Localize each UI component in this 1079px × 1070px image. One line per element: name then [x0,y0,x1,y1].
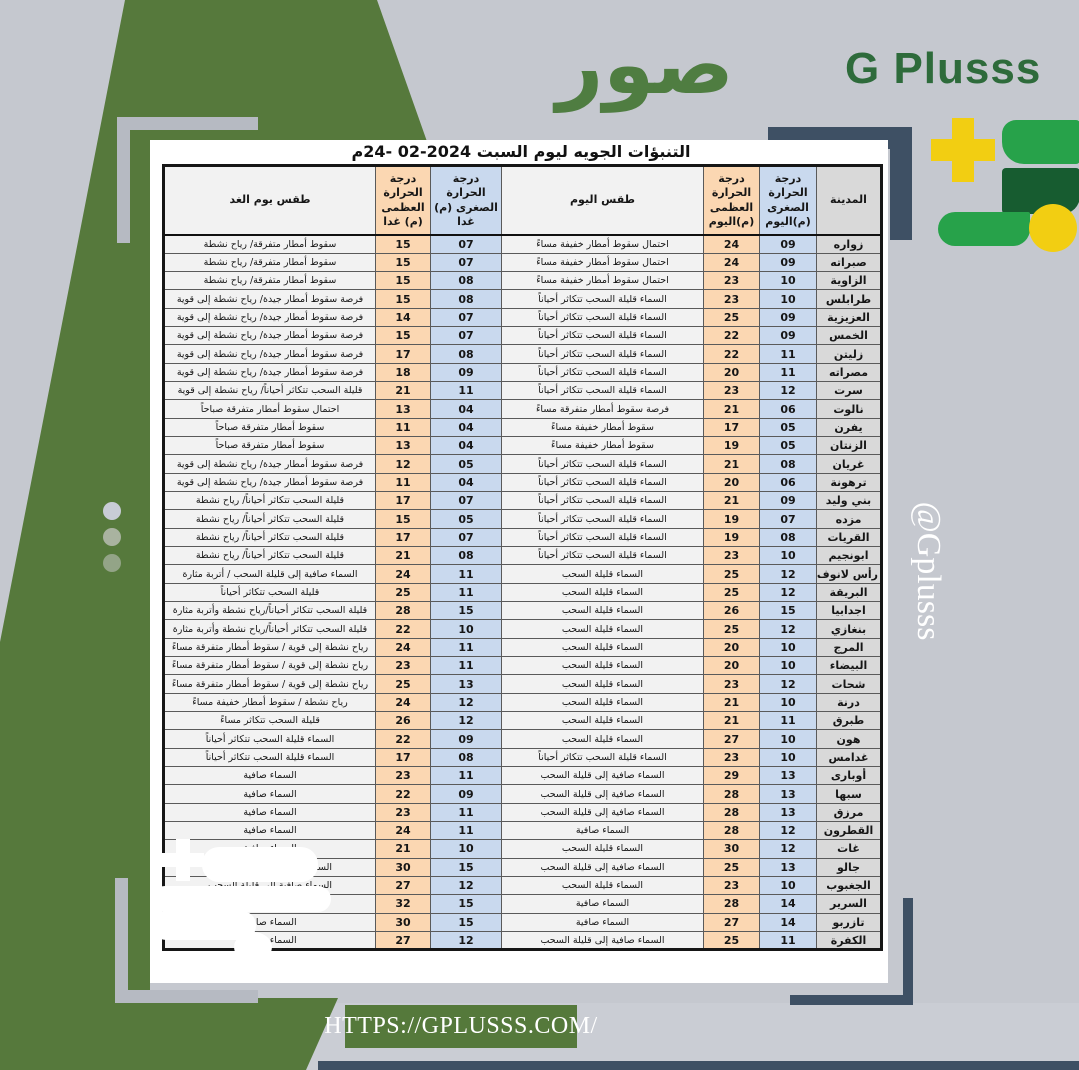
city-cell: مصراته [817,363,882,381]
bottom-left-bracket-vertical [115,878,128,1003]
city-cell: مزده [817,510,882,528]
today-max-cell: 24 [704,253,760,271]
today-min-cell: 13 [760,785,817,803]
today-max-cell: 23 [704,876,760,894]
today-max-cell: 28 [704,895,760,913]
tomorrow-max-cell: 25 [376,583,431,601]
today-weather-cell: السماء قليلة السحب تتكاثر أحياناً [502,547,704,565]
tomorrow-min-cell: 05 [431,510,502,528]
tomorrow-min-cell: 07 [431,327,502,345]
today-min-cell: 06 [760,400,817,418]
tomorrow-max-cell: 30 [376,913,431,931]
tomorrow-min-cell: 13 [431,675,502,693]
tomorrow-weather-cell: فرصة سقوط أمطار جيدة/ رياح نشطة إلى قوية [164,327,376,345]
tomorrow-min-cell: 11 [431,583,502,601]
tomorrow-weather-cell: قليلة السحب تتكاثر أحياناً/ رياح نشطة [164,492,376,510]
tomorrow-max-cell: 13 [376,437,431,455]
today-min-cell: 09 [760,308,817,326]
tomorrow-min-cell: 15 [431,602,502,620]
city-cell: القطرون [817,822,882,840]
today-weather-cell: السماء قليلة السحب [502,602,704,620]
tomorrow-max-cell: 17 [376,748,431,766]
today-min-cell: 08 [760,528,817,546]
today-max-cell: 25 [704,620,760,638]
today-weather-cell: السماء صافية إلى قليلة السحب [502,767,704,785]
tomorrow-min-cell: 05 [431,455,502,473]
today-max-cell: 20 [704,473,760,491]
tomorrow-weather-cell: فرصة سقوط أمطار جيدة/ رياح نشطة إلى قوية [164,473,376,491]
today-weather-cell: السماء صافية [502,822,704,840]
tomorrow-min-cell: 12 [431,693,502,711]
today-max-cell: 22 [704,327,760,345]
table-row: سبها1328السماء صافية إلى قليلة السحب0922… [164,785,882,803]
tomorrow-min-cell: 04 [431,418,502,436]
tomorrow-max-cell: 23 [376,803,431,821]
logo-dot [1029,204,1077,252]
tomorrow-min-cell: 10 [431,620,502,638]
today-weather-cell: احتمال سقوط أمطار خفيفة مساءً [502,272,704,290]
tomorrow-min-cell: 11 [431,565,502,583]
tomorrow-weather-cell: السماء صافية [164,767,376,785]
city-cell: البيضاء [817,657,882,675]
today-min-cell: 10 [760,876,817,894]
table-row: الزنتان0519سقوط أمطار خفيفة مساءً0413سقو… [164,437,882,455]
city-cell: مرزق [817,803,882,821]
tomorrow-max-cell: 11 [376,418,431,436]
table-row: البيضاء1020السماء قليلة السحب1123رياح نش… [164,657,882,675]
weather-forecast-table: المدينة درجة الحرارة الصغرى (م)اليوم درج… [162,164,883,951]
today-max-cell: 27 [704,913,760,931]
city-cell: جالو [817,858,882,876]
soor-logo-text: صور [555,18,735,118]
today-min-cell: 11 [760,345,817,363]
today-max-cell: 26 [704,602,760,620]
tomorrow-weather-cell: سقوط أمطار متفرقة صباحاً [164,418,376,436]
today-min-cell: 05 [760,418,817,436]
table-row: ترهونة0620السماء قليلة السحب تتكاثر أحيا… [164,473,882,491]
tomorrow-min-cell: 07 [431,528,502,546]
today-weather-cell: السماء قليلة السحب تتكاثر أحياناً [502,363,704,381]
tomorrow-max-cell: 30 [376,858,431,876]
tomorrow-max-cell: 15 [376,235,431,253]
today-max-cell: 21 [704,492,760,510]
today-min-cell: 12 [760,822,817,840]
city-cell: ترهونة [817,473,882,491]
tomorrow-max-cell: 21 [376,840,431,858]
today-max-cell: 25 [704,931,760,949]
today-weather-cell: السماء صافية إلى قليلة السحب [502,858,704,876]
city-cell: أوبارى [817,767,882,785]
table-row: هون1027السماء قليلة السحب0922السماء قليل… [164,730,882,748]
tomorrow-weather-cell: رياح نشطة إلى قوية / سقوط أمطار متفرقة م… [164,638,376,656]
today-max-cell: 25 [704,308,760,326]
website-url: HTTPS://GPLUSSS.COM/ [324,1013,597,1040]
today-weather-cell: السماء قليلة السحب [502,730,704,748]
city-cell: صبراته [817,253,882,271]
today-max-cell: 23 [704,748,760,766]
today-max-cell: 23 [704,272,760,290]
tomorrow-min-cell: 15 [431,858,502,876]
tomorrow-weather-cell: السماء قليلة السحب تتكاثر أحياناً [164,730,376,748]
today-weather-cell: السماء قليلة السحب [502,657,704,675]
tomorrow-min-cell: 08 [431,547,502,565]
today-weather-cell: السماء قليلة السحب تتكاثر أحياناً [502,308,704,326]
today-max-cell: 20 [704,638,760,656]
city-cell: الجغبوب [817,876,882,894]
tomorrow-min-cell: 08 [431,272,502,290]
today-max-cell: 29 [704,767,760,785]
tomorrow-weather-cell: السماء صافية [164,785,376,803]
city-cell: سرت [817,382,882,400]
bottom-right-bracket-horizontal [790,995,913,1005]
bottom-right-bracket-vertical [903,898,913,1005]
today-min-cell: 12 [760,583,817,601]
tomorrow-max-cell: 22 [376,785,431,803]
tomorrow-weather-cell: سقوط أمطار متفرقة صباحاً [164,437,376,455]
tomorrow-min-cell: 15 [431,913,502,931]
today-weather-cell: السماء قليلة السحب تتكاثر أحياناً [502,492,704,510]
watermark-plus-horizontal [162,853,204,867]
city-cell: زليتن [817,345,882,363]
city-cell: طرابلس [817,290,882,308]
city-cell: غدامس [817,748,882,766]
today-weather-cell: فرصة سقوط أمطار متفرقة مساءً [502,400,704,418]
header-tomorrow-max: درجة الحرارة العظمى (م) غدا [376,166,431,236]
table-row: زليتن1122السماء قليلة السحب تتكاثر أحيان… [164,345,882,363]
bottom-navy-strip [318,1061,1079,1070]
tomorrow-max-cell: 22 [376,730,431,748]
tomorrow-min-cell: 08 [431,345,502,363]
tomorrow-weather-cell: رياح نشطة إلى قوية / سقوط أمطار متفرقة م… [164,675,376,693]
city-cell: المرج [817,638,882,656]
today-min-cell: 07 [760,510,817,528]
tomorrow-min-cell: 11 [431,638,502,656]
today-max-cell: 19 [704,437,760,455]
city-cell: الزاوية [817,272,882,290]
tomorrow-min-cell: 11 [431,767,502,785]
table-row: زواره0924احتمال سقوط أمطار خفيفة مساءً07… [164,235,882,253]
city-cell: الزنتان [817,437,882,455]
table-body: زواره0924احتمال سقوط أمطار خفيفة مساءً07… [164,235,882,950]
tomorrow-weather-cell: قليلة السحب تتكاثر أحياناً/ رياح نشطة [164,547,376,565]
bottom-left-bracket-horizontal [115,990,258,1003]
tomorrow-max-cell: 15 [376,510,431,528]
tomorrow-max-cell: 28 [376,602,431,620]
today-max-cell: 27 [704,730,760,748]
today-weather-cell: السماء قليلة السحب [502,712,704,730]
today-weather-cell: السماء قليلة السحب تتكاثر أحياناً [502,290,704,308]
today-weather-cell: السماء قليلة السحب [502,693,704,711]
today-min-cell: 12 [760,382,817,400]
tomorrow-max-cell: 15 [376,290,431,308]
tomorrow-max-cell: 24 [376,693,431,711]
header-tomorrow-weather: طقس يوم الغد [164,166,376,236]
tomorrow-weather-cell: السماء صافية [164,822,376,840]
today-min-cell: 12 [760,565,817,583]
today-weather-cell: السماء قليلة السحب [502,876,704,894]
today-weather-cell: السماء صافية إلى قليلة السحب [502,785,704,803]
table-row: أوبارى1329السماء صافية إلى قليلة السحب11… [164,767,882,785]
today-weather-cell: سقوط أمطار خفيفة مساءً [502,418,704,436]
today-weather-cell: السماء صافية إلى قليلة السحب [502,803,704,821]
city-cell: البريقة [817,583,882,601]
today-max-cell: 19 [704,510,760,528]
tomorrow-max-cell: 14 [376,308,431,326]
city-cell: غات [817,840,882,858]
today-weather-cell: السماء قليلة السحب [502,675,704,693]
tomorrow-max-cell: 26 [376,712,431,730]
today-weather-cell: السماء قليلة السحب [502,840,704,858]
tomorrow-max-cell: 17 [376,345,431,363]
tomorrow-max-cell: 12 [376,455,431,473]
today-max-cell: 17 [704,418,760,436]
today-min-cell: 09 [760,327,817,345]
tomorrow-weather-cell: رياح نشطة / سقوط أمطار خفيفة مساءً [164,693,376,711]
today-weather-cell: السماء صافية [502,895,704,913]
top-left-bracket-horizontal [117,117,258,130]
table-row: غدامس1023السماء قليلة السحب تتكاثر أحيان… [164,748,882,766]
tomorrow-weather-cell: سقوط أمطار متفرقة/ رياح نشطة [164,235,376,253]
tomorrow-min-cell: 11 [431,657,502,675]
city-cell: الخمس [817,327,882,345]
city-cell: زواره [817,235,882,253]
today-max-cell: 28 [704,822,760,840]
today-min-cell: 12 [760,675,817,693]
tomorrow-max-cell: 13 [376,400,431,418]
header-today-weather: طقس اليوم [502,166,704,236]
city-cell: بني وليد [817,492,882,510]
tomorrow-min-cell: 11 [431,382,502,400]
title-text: التنبؤات الجويه ليوم السبت [477,142,691,161]
city-cell: العزيزية [817,308,882,326]
today-max-cell: 25 [704,858,760,876]
today-max-cell: 24 [704,235,760,253]
tomorrow-weather-cell: فرصة سقوط أمطار جيدة/ رياح نشطة إلى قوية [164,345,376,363]
table-row: شحات1223السماء قليلة السحب1325رياح نشطة … [164,675,882,693]
today-max-cell: 23 [704,547,760,565]
tomorrow-weather-cell: فرصة سقوط أمطار جيدة/ رياح نشطة إلى قوية [164,290,376,308]
table-row: بني وليد0921السماء قليلة السحب تتكاثر أح… [164,492,882,510]
today-min-cell: 10 [760,657,817,675]
today-max-cell: 21 [704,400,760,418]
table-row: سرت1223السماء قليلة السحب تتكاثر أحياناً… [164,382,882,400]
today-weather-cell: سقوط أمطار خفيفة مساءً [502,437,704,455]
tomorrow-weather-cell: قليلة السحب تتكاثر أحياناً/رياح نشطة وأت… [164,620,376,638]
tomorrow-min-cell: 12 [431,931,502,949]
today-weather-cell: السماء قليلة السحب تتكاثر أحياناً [502,327,704,345]
tomorrow-max-cell: 21 [376,382,431,400]
today-min-cell: 14 [760,913,817,931]
header-row: المدينة درجة الحرارة الصغرى (م)اليوم درج… [164,166,882,236]
city-cell: طبرق [817,712,882,730]
table-row: بنغازي1225السماء قليلة السحب1022قليلة ال… [164,620,882,638]
table-row: مرزق1328السماء صافية إلى قليلة السحب1123… [164,803,882,821]
website-url-bar[interactable]: HTTPS://GPLUSSS.COM/ [345,1005,577,1048]
table-row: طرابلس1023السماء قليلة السحب تتكاثر أحيا… [164,290,882,308]
tomorrow-max-cell: 27 [376,876,431,894]
table-row: العزيزية0925السماء قليلة السحب تتكاثر أح… [164,308,882,326]
tomorrow-weather-cell: السماء صافية [164,803,376,821]
city-cell: غريان [817,455,882,473]
today-weather-cell: السماء قليلة السحب تتكاثر أحياناً [502,473,704,491]
table-row: طبرق1121السماء قليلة السحب1226قليلة السح… [164,712,882,730]
tomorrow-max-cell: 15 [376,253,431,271]
today-min-cell: 11 [760,931,817,949]
city-cell: درنة [817,693,882,711]
tomorrow-weather-cell: قليلة السحب تتكاثر أحياناً/رياح نشطة وأت… [164,602,376,620]
tomorrow-max-cell: 17 [376,492,431,510]
tomorrow-min-cell: 15 [431,895,502,913]
today-max-cell: 20 [704,657,760,675]
table-row: غريان0821السماء قليلة السحب تتكاثر أحيان… [164,455,882,473]
watermark-blob-1 [202,847,318,882]
today-weather-cell: السماء قليلة السحب تتكاثر أحياناً [502,455,704,473]
tomorrow-weather-cell: فرصة سقوط أمطار جيدة/ رياح نشطة إلى قوية [164,363,376,381]
today-max-cell: 25 [704,583,760,601]
today-min-cell: 10 [760,547,817,565]
decorative-dot-1 [103,502,121,520]
table-row: القطرون1228السماء صافية1124السماء صافية [164,822,882,840]
city-cell: نالوت [817,400,882,418]
tomorrow-weather-cell: احتمال سقوط أمطار متفرقة صباحاً [164,400,376,418]
today-min-cell: 06 [760,473,817,491]
social-handle: @Gplusss [911,471,947,671]
logo-flag-shape [1002,120,1079,164]
city-cell: السرير [817,895,882,913]
today-weather-cell: احتمال سقوط أمطار خفيفة مساءً [502,235,704,253]
tomorrow-min-cell: 04 [431,400,502,418]
watermark-blob-4 [234,932,272,962]
today-weather-cell: السماء صافية [502,913,704,931]
tomorrow-max-cell: 32 [376,895,431,913]
city-cell: الكفرة [817,931,882,949]
tomorrow-min-cell: 07 [431,235,502,253]
today-max-cell: 28 [704,785,760,803]
table-row: المرج1020السماء قليلة السحب1124رياح نشطة… [164,638,882,656]
today-max-cell: 20 [704,363,760,381]
today-min-cell: 10 [760,290,817,308]
today-min-cell: 09 [760,235,817,253]
city-cell: تازربو [817,913,882,931]
table-title: التنبؤات الجويه ليوم السبت 24- 02-2024م [162,142,880,161]
today-weather-cell: السماء قليلة السحب تتكاثر أحياناً [502,382,704,400]
tomorrow-max-cell: 27 [376,931,431,949]
today-max-cell: 23 [704,675,760,693]
today-min-cell: 11 [760,363,817,381]
tomorrow-weather-cell: السماء صافية إلى قليلة السحب / أتربة مثا… [164,565,376,583]
table-row: رأس لانوف1225السماء قليلة السحب1124السما… [164,565,882,583]
today-max-cell: 25 [704,565,760,583]
today-weather-cell: السماء قليلة السحب [502,638,704,656]
tomorrow-min-cell: 12 [431,712,502,730]
tomorrow-max-cell: 23 [376,767,431,785]
tomorrow-weather-cell: قليلة السحب تتكاثر أحياناً/ رياح نشطة [164,510,376,528]
today-max-cell: 30 [704,840,760,858]
today-max-cell: 21 [704,693,760,711]
today-weather-cell: احتمال سقوط أمطار خفيفة مساءً [502,253,704,271]
top-left-bracket-vertical [117,117,130,243]
city-cell: القريات [817,528,882,546]
tomorrow-max-cell: 24 [376,822,431,840]
table-row: يفرن0517سقوط أمطار خفيفة مساءً0411سقوط أ… [164,418,882,436]
tomorrow-weather-cell: فرصة سقوط أمطار جيدة/ رياح نشطة إلى قوية [164,308,376,326]
tomorrow-weather-cell: قليلة السحب تتكاثر أحياناً/ رياح نشطة [164,528,376,546]
gplusss-logo-icon [925,110,1079,255]
plus-icon-bar [931,139,995,161]
table-row: مزده0719السماء قليلة السحب تتكاثر أحيانا… [164,510,882,528]
top-right-bracket-vertical [890,127,912,240]
tomorrow-weather-cell: قليلة السحب تتكاثر أحياناً/ رياح نشطة إل… [164,382,376,400]
today-min-cell: 12 [760,620,817,638]
city-cell: ابونجيم [817,547,882,565]
today-max-cell: 22 [704,345,760,363]
tomorrow-min-cell: 07 [431,492,502,510]
today-weather-cell: السماء قليلة السحب تتكاثر أحياناً [502,345,704,363]
city-cell: سبها [817,785,882,803]
tomorrow-max-cell: 17 [376,528,431,546]
watermark-blob-2 [152,886,331,912]
today-weather-cell: السماء قليلة السحب [502,620,704,638]
header-tomorrow-min: درجة الحرارة الصغرى (م) غدا [431,166,502,236]
today-weather-cell: السماء قليلة السحب تتكاثر أحياناً [502,510,704,528]
table-row: الخمس0922السماء قليلة السحب تتكاثر أحيان… [164,327,882,345]
tomorrow-weather-cell: قليلة السحب تتكاثر أحياناً [164,583,376,601]
table-row: اجدابيا1526السماء قليلة السحب1528قليلة ا… [164,602,882,620]
tomorrow-max-cell: 25 [376,675,431,693]
tomorrow-min-cell: 11 [431,803,502,821]
logo-leaf-shape [938,212,1030,246]
title-date: 24- 02-2024 [363,142,471,161]
tomorrow-weather-cell: قليلة السحب تتكاثر مساءً [164,712,376,730]
tomorrow-max-cell: 24 [376,638,431,656]
header-today-max: درجة الحرارة العظمى (م)اليوم [704,166,760,236]
today-max-cell: 23 [704,290,760,308]
today-min-cell: 13 [760,858,817,876]
tomorrow-min-cell: 07 [431,253,502,271]
tomorrow-min-cell: 08 [431,290,502,308]
tomorrow-min-cell: 09 [431,363,502,381]
tomorrow-weather-cell: فرصة سقوط أمطار جيدة/ رياح نشطة إلى قوية [164,455,376,473]
today-weather-cell: السماء صافية إلى قليلة السحب [502,931,704,949]
tomorrow-max-cell: 23 [376,657,431,675]
tomorrow-max-cell: 22 [376,620,431,638]
tomorrow-max-cell: 15 [376,272,431,290]
today-max-cell: 21 [704,455,760,473]
city-cell: شحات [817,675,882,693]
tomorrow-max-cell: 21 [376,547,431,565]
table-row: تازربو1427السماء صافية1530السماء صافية [164,913,882,931]
header-city: المدينة [817,166,882,236]
tomorrow-min-cell: 12 [431,876,502,894]
decorative-dot-2 [103,528,121,546]
table-row: الزاوية1023احتمال سقوط أمطار خفيفة مساءً… [164,272,882,290]
title-date-suffix: م [352,142,364,161]
today-min-cell: 10 [760,272,817,290]
tomorrow-min-cell: 07 [431,308,502,326]
tomorrow-max-cell: 11 [376,473,431,491]
decorative-dot-3 [103,554,121,572]
today-min-cell: 13 [760,803,817,821]
today-min-cell: 09 [760,253,817,271]
today-weather-cell: السماء قليلة السحب تتكاثر أحياناً [502,748,704,766]
today-weather-cell: السماء قليلة السحب [502,565,704,583]
header-today-min: درجة الحرارة الصغرى (م)اليوم [760,166,817,236]
today-min-cell: 12 [760,840,817,858]
tomorrow-min-cell: 10 [431,840,502,858]
today-max-cell: 23 [704,382,760,400]
tomorrow-min-cell: 09 [431,785,502,803]
city-cell: رأس لانوف [817,565,882,583]
